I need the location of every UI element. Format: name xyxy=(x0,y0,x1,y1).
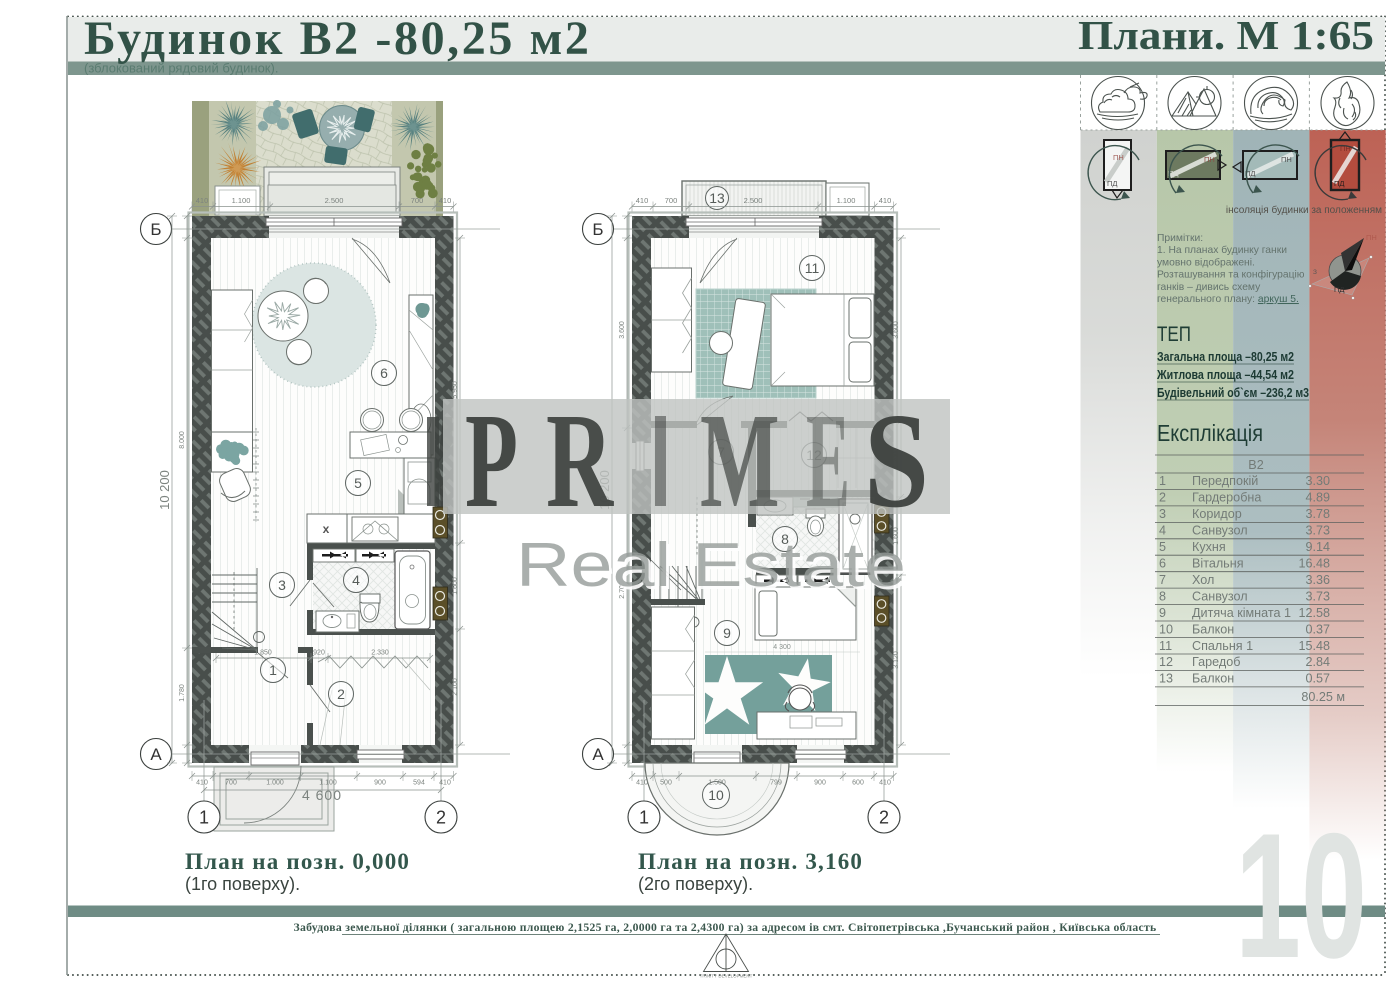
svg-text:13: 13 xyxy=(709,190,725,206)
svg-text:10: 10 xyxy=(1159,622,1173,636)
svg-text:А: А xyxy=(592,745,604,764)
svg-text:S: S xyxy=(864,386,929,536)
svg-text:5: 5 xyxy=(354,475,362,491)
svg-text:2.84: 2.84 xyxy=(1305,655,1330,669)
svg-text:410: 410 xyxy=(439,780,451,787)
svg-text:10 200: 10 200 xyxy=(157,470,172,510)
svg-text:1.100: 1.100 xyxy=(319,780,337,787)
svg-text:Загальна площа –80,25 м2: Загальна площа –80,25 м2 xyxy=(1157,349,1294,364)
svg-text:1.780: 1.780 xyxy=(179,684,186,702)
svg-text:Real Estate: Real Estate xyxy=(516,531,906,600)
svg-text:9: 9 xyxy=(1159,606,1166,620)
svg-text:0.37: 0.37 xyxy=(1305,622,1330,636)
svg-text:410: 410 xyxy=(196,780,208,787)
svg-text:M: M xyxy=(700,386,780,536)
svg-text:3: 3 xyxy=(278,577,286,593)
svg-text:700: 700 xyxy=(665,196,678,205)
svg-text:500: 500 xyxy=(660,780,672,787)
svg-text:Будинок В2 -80,25 м2: Будинок В2 -80,25 м2 xyxy=(84,12,591,65)
svg-text:600: 600 xyxy=(852,780,864,787)
svg-text:2.500: 2.500 xyxy=(744,196,763,205)
svg-text:4: 4 xyxy=(1159,524,1166,538)
svg-text:4 600: 4 600 xyxy=(302,787,342,803)
svg-text:В2: В2 xyxy=(1248,458,1263,472)
svg-text:Балкон: Балкон xyxy=(1192,622,1234,636)
svg-text:4: 4 xyxy=(352,572,360,588)
svg-text:3.73: 3.73 xyxy=(1305,589,1330,603)
svg-text:Кухня: Кухня xyxy=(1192,540,1226,554)
svg-text:11: 11 xyxy=(805,260,820,276)
svg-text:інсоляція будинки за положення: інсоляція будинки за положенням xyxy=(1226,204,1382,216)
svg-text:Гардеробна: Гардеробна xyxy=(1192,491,1261,505)
svg-text:920: 920 xyxy=(313,650,325,657)
svg-text:4.89: 4.89 xyxy=(1305,491,1330,505)
svg-text:Будівельний об`єм –236,2 м3: Будівельний об`єм –236,2 м3 xyxy=(1157,385,1309,400)
svg-text:Забудова земельної ділянки ( з: Забудова земельної ділянки ( загальною п… xyxy=(293,921,1156,934)
svg-text:8.000: 8.000 xyxy=(179,431,186,449)
svg-text:410: 410 xyxy=(879,196,892,205)
svg-text:ПД: ПД xyxy=(1107,179,1117,188)
svg-text:900: 900 xyxy=(374,780,386,787)
svg-text:ПД: ПД xyxy=(1334,179,1344,188)
svg-text:P: P xyxy=(465,384,518,535)
svg-text:Дитяча кімната 1: Дитяча кімната 1 xyxy=(1192,606,1291,620)
svg-text:Передпокій: Передпокій xyxy=(1192,474,1258,488)
svg-text:11: 11 xyxy=(1159,639,1172,653)
svg-text:Гаредоб: Гаредоб xyxy=(1192,655,1240,669)
svg-text:5: 5 xyxy=(1159,540,1166,554)
svg-text:80.25 м: 80.25 м xyxy=(1301,690,1345,704)
svg-text:410: 410 xyxy=(439,196,452,205)
svg-text:6: 6 xyxy=(380,365,388,381)
svg-text:1.500: 1.500 xyxy=(708,780,726,787)
svg-text:Санвузол: Санвузол xyxy=(1192,589,1248,603)
svg-text:410: 410 xyxy=(636,196,649,205)
svg-text:Балкон: Балкон xyxy=(1192,672,1234,686)
svg-text:9.14: 9.14 xyxy=(1305,540,1330,554)
svg-text:3: 3 xyxy=(1159,507,1166,521)
svg-text:16.48: 16.48 xyxy=(1298,557,1330,571)
svg-text:Коридор: Коридор xyxy=(1192,507,1242,521)
svg-text:1.600: 1.600 xyxy=(452,577,459,595)
svg-text:2.100: 2.100 xyxy=(452,678,459,696)
svg-text:2: 2 xyxy=(436,807,446,827)
svg-text:ПН: ПН xyxy=(1204,155,1215,164)
svg-text:Експлікація: Експлікація xyxy=(1157,420,1263,446)
svg-text:ПН: ПН xyxy=(1281,155,1292,164)
svg-text:(2го поверху).: (2го поверху). xyxy=(638,874,753,894)
svg-text:(зблокований рядовий будинок).: (зблокований рядовий будинок). xyxy=(84,61,278,76)
svg-text:Б: Б xyxy=(150,220,161,239)
svg-text:План на позн. 3,160: План на позн. 3,160 xyxy=(638,849,863,874)
svg-text:410: 410 xyxy=(879,780,891,787)
svg-text:1.100: 1.100 xyxy=(837,196,856,205)
svg-text:Б: Б xyxy=(592,220,603,239)
svg-text:R: R xyxy=(546,386,615,537)
svg-text:1: 1 xyxy=(269,662,277,678)
svg-text:700: 700 xyxy=(411,196,424,205)
svg-text:900: 900 xyxy=(814,780,826,787)
svg-text:Вітальня: Вітальня xyxy=(1192,557,1244,571)
svg-text:1: 1 xyxy=(199,807,209,827)
svg-text:15.48: 15.48 xyxy=(1298,639,1330,653)
svg-text:E: E xyxy=(806,386,850,536)
svg-text:2: 2 xyxy=(1159,491,1166,505)
svg-text:3.30: 3.30 xyxy=(1305,474,1330,488)
svg-text:2: 2 xyxy=(879,807,889,827)
svg-text:410: 410 xyxy=(636,780,648,787)
svg-text:10: 10 xyxy=(1235,796,1367,990)
svg-text:9: 9 xyxy=(723,625,731,641)
svg-text:Житлова площа –44,54 м2: Житлова площа –44,54 м2 xyxy=(1156,367,1294,382)
svg-text:3.73: 3.73 xyxy=(1305,524,1330,538)
svg-text:12: 12 xyxy=(1159,655,1173,669)
svg-text:1: 1 xyxy=(639,807,649,827)
svg-text:TRINITY DEVELOPMENT: TRINITY DEVELOPMENT xyxy=(700,974,753,979)
svg-text:12.58: 12.58 xyxy=(1298,606,1330,620)
svg-text:1: 1 xyxy=(1159,474,1166,488)
svg-text:ПН: ПН xyxy=(1113,153,1124,162)
svg-text:З: З xyxy=(1313,269,1317,276)
svg-text:2: 2 xyxy=(337,686,345,702)
svg-text:3.36: 3.36 xyxy=(1305,573,1330,587)
svg-text:ПД: ПД xyxy=(1334,285,1344,294)
svg-text:4 300: 4 300 xyxy=(773,644,791,651)
svg-text:3.120: 3.120 xyxy=(893,651,900,669)
svg-text:3.600: 3.600 xyxy=(893,321,900,339)
svg-text:410: 410 xyxy=(196,196,209,205)
svg-text:План на позн. 0,000: План на позн. 0,000 xyxy=(185,849,410,874)
svg-text:1.000: 1.000 xyxy=(266,780,284,787)
svg-text:x: x xyxy=(323,522,330,536)
svg-text:2.500: 2.500 xyxy=(325,196,344,205)
svg-text:2.330: 2.330 xyxy=(371,650,389,657)
svg-text:700: 700 xyxy=(225,780,237,787)
svg-text:8: 8 xyxy=(1159,589,1166,603)
svg-text:ТЕП: ТЕП xyxy=(1157,323,1191,346)
svg-text:6: 6 xyxy=(1159,557,1166,571)
svg-text:0.57: 0.57 xyxy=(1305,672,1330,686)
svg-text:594: 594 xyxy=(413,780,425,787)
svg-text:10: 10 xyxy=(708,787,724,803)
svg-text:3.78: 3.78 xyxy=(1305,507,1330,521)
svg-text:1.850: 1.850 xyxy=(254,650,272,657)
svg-text:1.100: 1.100 xyxy=(232,196,251,205)
svg-text:Плани. М 1:65: Плани. М 1:65 xyxy=(1078,12,1374,58)
svg-text:ПН: ПН xyxy=(1366,233,1377,242)
svg-text:3.600: 3.600 xyxy=(619,321,626,339)
svg-text:(1го поверху).: (1го поверху). xyxy=(185,874,300,894)
svg-text:Спальня 1: Спальня 1 xyxy=(1192,639,1253,653)
svg-text:5.950: 5.950 xyxy=(452,381,459,399)
svg-text:799: 799 xyxy=(770,780,782,787)
svg-text:А: А xyxy=(150,745,162,764)
svg-text:7: 7 xyxy=(1159,573,1166,587)
svg-text:Санвузол: Санвузол xyxy=(1192,524,1248,538)
svg-text:Хол: Хол xyxy=(1192,573,1214,587)
svg-text:13: 13 xyxy=(1159,672,1173,686)
